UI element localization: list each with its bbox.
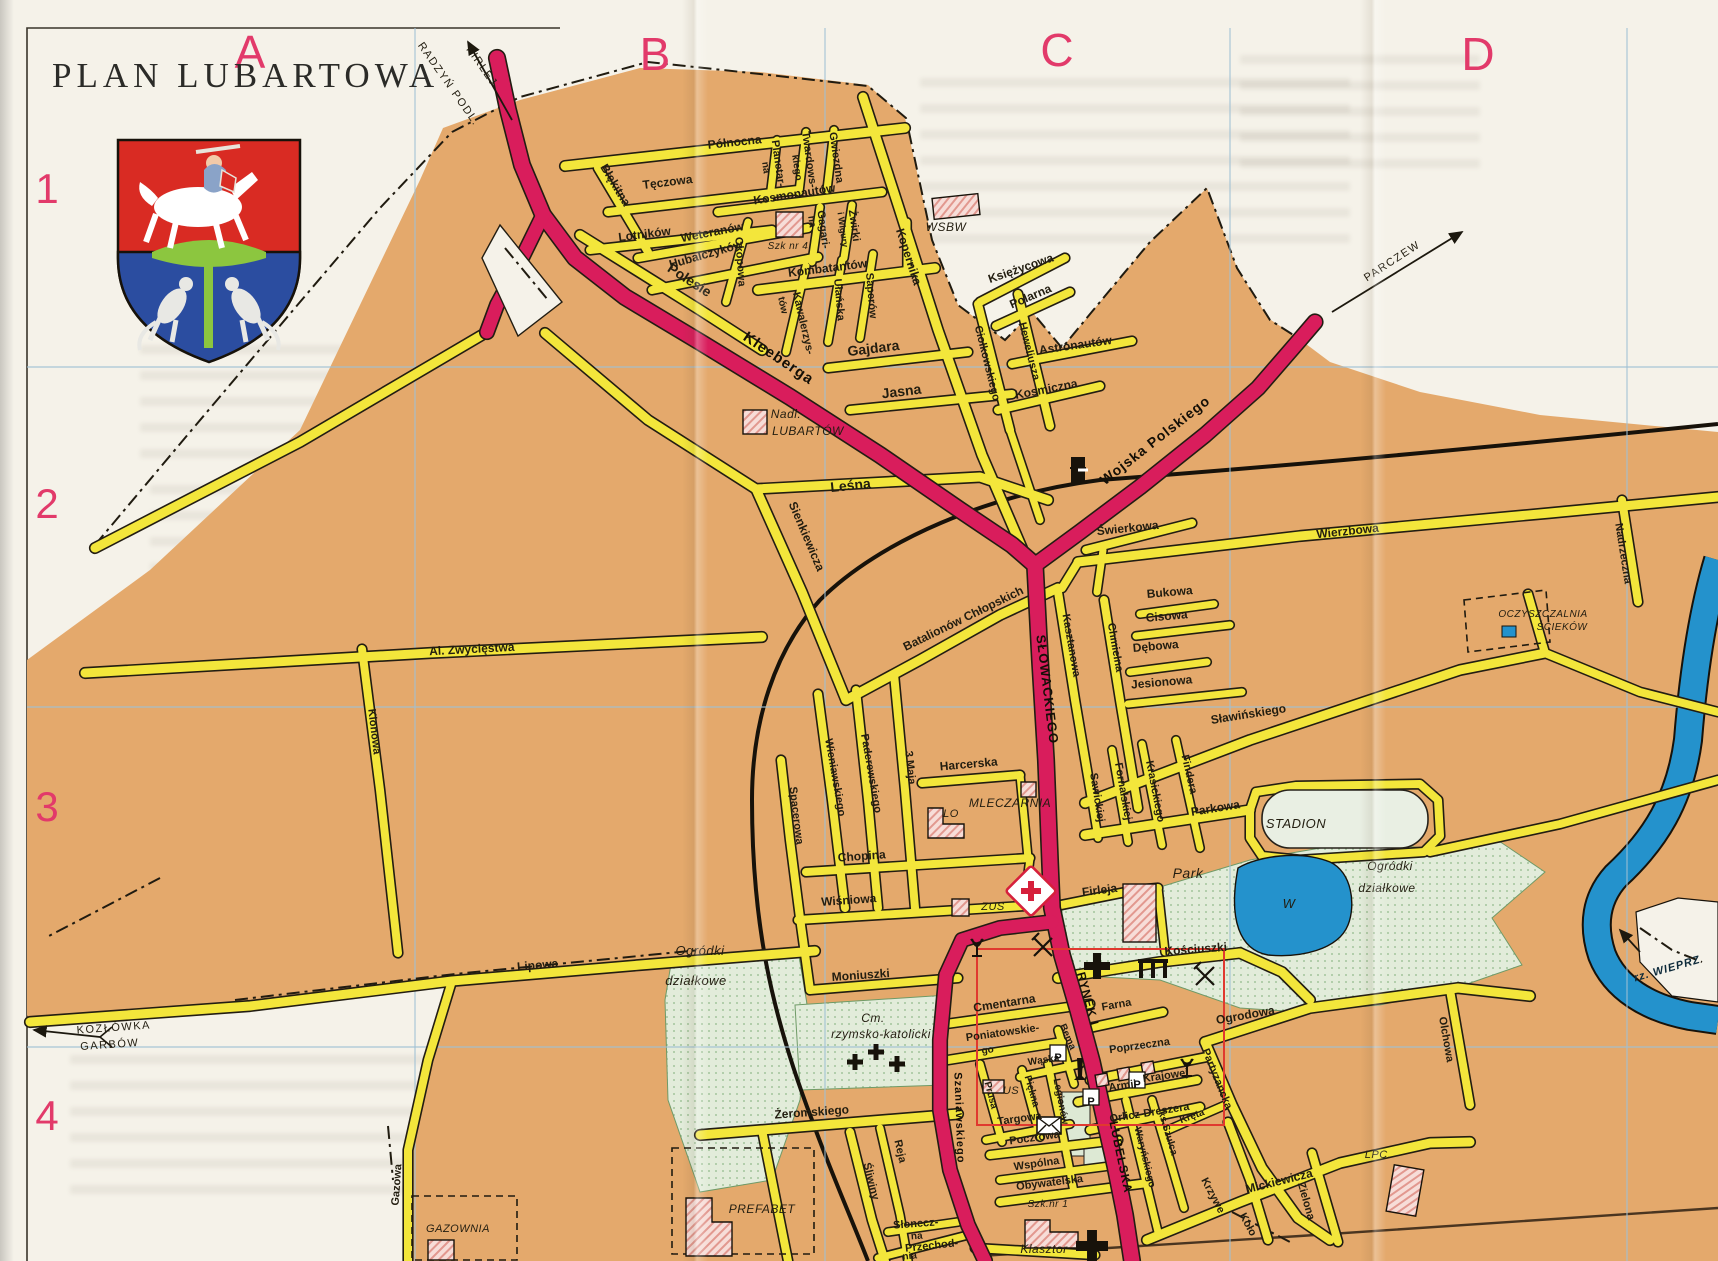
grid-label: C [1040,24,1073,76]
place-label: WSBW [926,220,968,234]
place-label: Szk.nr 1 [1028,1199,1069,1210]
dairy-building [1021,782,1036,797]
monument-gate-icon [1138,961,1168,978]
place-label: ŚCIEKÓW [1537,620,1589,633]
building [1095,1073,1109,1087]
zus-building [952,899,969,916]
grid-label: 2 [35,480,58,527]
firlej-palace [1123,884,1156,942]
parking-label: P [1087,1096,1094,1108]
map-page: ABCD1234RADZYŃ PODL.FIRLEJPARCZEWKOZŁÓWK… [0,0,1718,1261]
place-label: Klasztor [1020,1242,1068,1256]
treatment-plant-marker [1502,626,1516,637]
school-4-building [776,212,803,237]
forestry-building [743,410,767,434]
parking-label: P [1133,1079,1140,1091]
place-label: rzymsko-katolicki [831,1027,931,1041]
direction-label: GARBÓW [80,1036,140,1053]
coat-of-arms [118,140,300,362]
place-label: GAZOWNIA [426,1223,490,1235]
place-label: Szk nr 4 [768,241,809,252]
city-map: ABCD1234RADZYŃ PODL.FIRLEJPARCZEWKOZŁÓWK… [0,0,1718,1261]
place-label: LUBARTÓW [772,423,845,438]
direction-arrow [1332,232,1462,312]
street-label: nia [902,1250,918,1261]
place-label: Ogródki [1367,859,1413,873]
place-label: STADION [1266,816,1326,831]
place-label: MLECZARNIA [969,796,1051,810]
place-label: LO [943,808,959,820]
place-label: działkowe [1358,881,1415,895]
place-label: W [1283,896,1297,911]
place-label: Cm. [861,1011,885,1025]
grid-label: 1 [35,165,58,212]
place-label: US [1003,1085,1019,1097]
street-label: go [981,1044,995,1057]
street-label: na [759,161,772,175]
place-label: OCZYSZCZALNIA [1498,609,1587,620]
place-label: ZUS [980,901,1005,913]
cemetery-area [795,995,948,1090]
place-label: Ogródki [675,943,725,958]
grid-label: 3 [35,783,58,830]
gasworks-building [428,1240,454,1260]
map-title: PLAN LUBARTOWA [52,56,432,96]
parking-label: P [1054,1052,1061,1064]
place-label: Nadl. [771,407,802,421]
grid-label: D [1461,28,1494,80]
grid-label: 4 [35,1092,58,1139]
place-label: PREFABET [729,1202,797,1216]
grid-label: B [640,28,671,80]
place-label: LPC. [1365,1149,1391,1161]
street-label: na [805,215,818,229]
place-label: działkowe [665,973,727,988]
page-edge [0,0,14,1261]
wsbw-building [932,194,980,220]
street-label: Gazowa [390,1163,405,1206]
place-label: Park [1173,865,1204,881]
